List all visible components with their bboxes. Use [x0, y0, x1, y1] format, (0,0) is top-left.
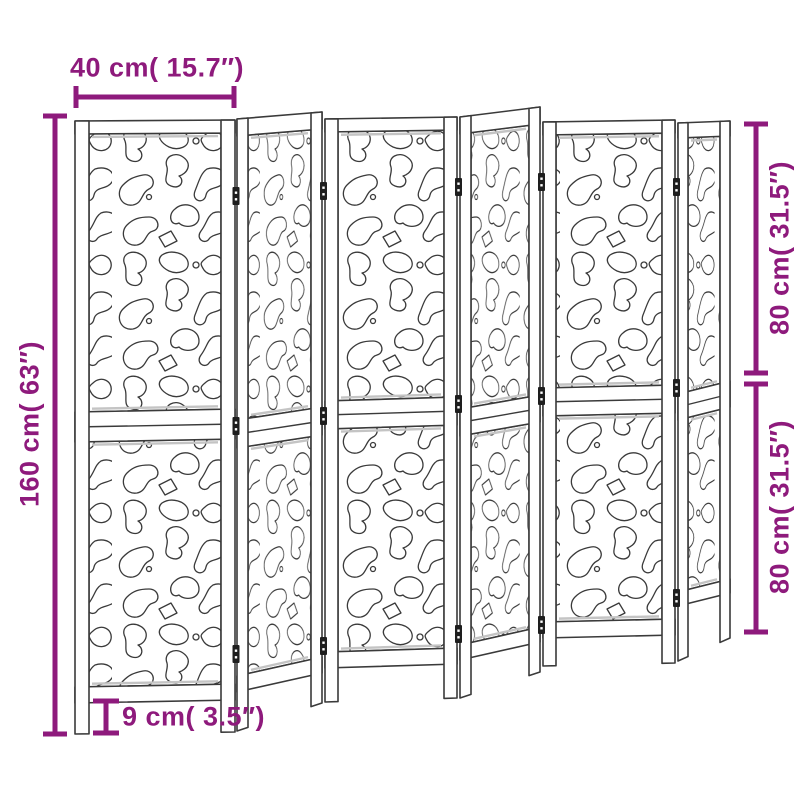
panel-3-upper-opening — [338, 130, 444, 400]
product-diagram: 40 cm( 15.7″) 160 cm( 63″) 80 cm( 31.5″)… — [0, 0, 800, 800]
hinge — [538, 173, 545, 191]
hinge — [320, 182, 327, 200]
panel-1-left-stile-leg — [75, 121, 89, 734]
upper-section-height-label: 80 cm( 31.5″) — [767, 161, 794, 335]
panel-2-lower-opening — [248, 437, 311, 674]
panel-1-upper-opening — [89, 133, 221, 412]
panel-4 — [460, 107, 540, 698]
panel-4-lower-opening — [471, 424, 529, 643]
divider-illustration — [0, 0, 800, 800]
panel-1-shading — [92, 136, 218, 137]
panel-5-shading — [559, 136, 659, 138]
panel-5 — [543, 120, 675, 666]
panel-6 — [678, 121, 730, 661]
panel-1-lower-opening — [89, 439, 221, 686]
panel-3-top-rail — [325, 117, 457, 132]
panel-6-right-stile-leg — [720, 121, 730, 642]
panel-6-shading — [691, 140, 717, 141]
total-height-label: 160 cm( 63″) — [17, 341, 44, 507]
hinge — [455, 178, 462, 196]
hinge — [233, 187, 240, 205]
leg-height-label: 9 cm( 3.5″) — [122, 704, 265, 731]
lower-section-height-label: 80 cm( 31.5″) — [767, 420, 794, 594]
panel-5-lower-opening — [556, 413, 662, 621]
panel-2 — [237, 112, 322, 731]
hinge — [233, 417, 240, 435]
hinge — [673, 589, 680, 607]
hinge — [455, 625, 462, 643]
leg-height-dimension-line — [93, 701, 119, 733]
panel-3 — [325, 117, 457, 702]
panel-5-top-rail — [543, 120, 675, 135]
panel-5-upper-opening — [556, 133, 662, 388]
hinge — [455, 395, 462, 413]
hinge — [673, 379, 680, 397]
panel-3-shading — [341, 133, 441, 135]
panel-6-lower-opening — [688, 410, 720, 590]
panel-4-upper-opening — [471, 125, 529, 407]
panel-2-upper-opening — [248, 130, 311, 418]
panel-5-bottom-rail — [543, 619, 675, 638]
hinge — [673, 178, 680, 196]
panel-width-label: 40 cm( 15.7″) — [70, 55, 244, 82]
hinge — [538, 387, 545, 405]
panel-6-upper-opening — [688, 136, 720, 391]
hinge — [538, 616, 545, 634]
panel-3-lower-opening — [338, 425, 444, 651]
hinge — [233, 645, 240, 663]
total-height-dimension-line — [43, 116, 67, 734]
panel-width-dimension-line — [76, 86, 234, 108]
hinge — [320, 637, 327, 655]
panel-3-bottom-rail — [325, 648, 457, 668]
panel-1 — [75, 120, 235, 734]
panel-1-top-rail — [75, 120, 235, 134]
hinge — [320, 407, 327, 425]
